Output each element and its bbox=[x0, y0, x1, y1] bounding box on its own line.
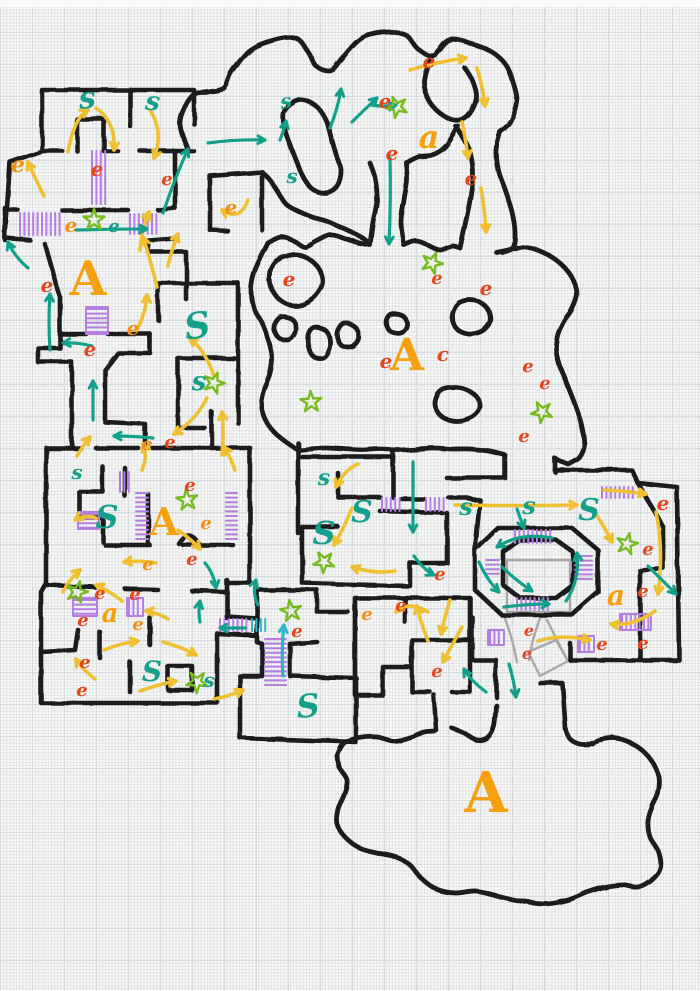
map-letter-e: e bbox=[132, 614, 143, 635]
map-letter-s: s bbox=[277, 88, 293, 114]
map-letter-S: S bbox=[312, 514, 335, 552]
teal-arrow bbox=[414, 556, 434, 575]
map-letter-S: S bbox=[295, 686, 321, 726]
wall bbox=[317, 590, 348, 612]
map-letter-e: e bbox=[186, 549, 197, 570]
yellow-arrow bbox=[163, 642, 196, 655]
map-letter-e: e bbox=[434, 564, 445, 585]
map-letter-s: s bbox=[521, 491, 536, 520]
yellow-arrow bbox=[27, 162, 44, 196]
door-hatch bbox=[120, 472, 129, 492]
map-letter-e: e bbox=[161, 169, 172, 190]
teal-arrow bbox=[195, 601, 203, 622]
map-letter-e: e bbox=[380, 349, 393, 373]
map-letter-e: e bbox=[164, 432, 175, 453]
wall bbox=[290, 642, 317, 644]
teal-arrow bbox=[7, 242, 28, 268]
map-letter-e: e bbox=[129, 584, 140, 605]
cave-wall bbox=[435, 388, 480, 421]
map-letter-a: a bbox=[102, 599, 119, 629]
yellow-arrow bbox=[104, 638, 138, 650]
door-hatch bbox=[486, 560, 499, 574]
map-letter-e: e bbox=[84, 337, 97, 361]
teal-arrow bbox=[330, 89, 344, 128]
door-hatch bbox=[426, 498, 444, 511]
wall bbox=[77, 119, 104, 151]
teal-arrow bbox=[464, 669, 486, 692]
star-icon bbox=[618, 533, 638, 554]
yellow-arrow bbox=[477, 68, 488, 106]
map-letter-e: e bbox=[637, 581, 648, 602]
cave-wall bbox=[452, 705, 496, 740]
map-letter-a: a bbox=[607, 579, 625, 612]
map-letter-e: e bbox=[386, 141, 399, 165]
graph-paper-page: sseeeeAeeeSseeeesseeaeeeeeAeceeesSSssSes… bbox=[0, 0, 700, 991]
map-letter-e: e bbox=[539, 373, 550, 394]
map-letter-e: e bbox=[522, 644, 532, 663]
teal-arrow bbox=[385, 158, 393, 244]
door-hatch bbox=[20, 213, 60, 235]
cave-wall bbox=[497, 247, 584, 464]
map-letter-e: e bbox=[108, 216, 119, 237]
wall bbox=[227, 616, 257, 618]
yellow-arrow bbox=[443, 627, 462, 662]
map-letter-e: e bbox=[480, 276, 493, 300]
dungeon-map: sseeeeAeeeSseeeesseeaeeeeeAeceeesSSssSes… bbox=[0, 0, 700, 991]
wall bbox=[105, 334, 150, 446]
map-letter-A: A bbox=[389, 330, 425, 381]
teal-arrow bbox=[46, 294, 54, 350]
map-letter-e: e bbox=[76, 680, 87, 701]
cave-wall bbox=[274, 317, 296, 341]
map-letter-e: e bbox=[142, 554, 153, 575]
wall bbox=[158, 208, 175, 210]
door-hatch bbox=[86, 307, 108, 334]
teal-arrow bbox=[479, 562, 499, 592]
map-letter-A: A bbox=[463, 760, 509, 826]
map-letter-e: e bbox=[395, 595, 406, 616]
yellow-arrow bbox=[481, 188, 490, 232]
map-letter-S: S bbox=[95, 498, 118, 536]
wall bbox=[434, 695, 436, 730]
wall bbox=[192, 591, 227, 592]
map-letter-e: e bbox=[596, 634, 607, 655]
door-hatch bbox=[488, 630, 504, 645]
door-hatch bbox=[226, 493, 237, 539]
map-letter-e: e bbox=[225, 195, 238, 219]
star-icon bbox=[300, 391, 321, 411]
map-letter-S: S bbox=[142, 655, 162, 688]
map-letter-e: e bbox=[379, 89, 392, 113]
cave-wall bbox=[404, 241, 460, 250]
map-letter-e: e bbox=[291, 621, 302, 642]
cave-wall bbox=[337, 323, 359, 348]
map-letter-a: a bbox=[419, 118, 440, 156]
yellow-arrow bbox=[96, 108, 118, 150]
yellow-arrow bbox=[352, 566, 395, 573]
yellow-arrow bbox=[224, 447, 235, 470]
map-letter-e: e bbox=[65, 213, 78, 237]
cyan-arrow bbox=[279, 625, 287, 676]
map-letter-e: e bbox=[642, 539, 653, 560]
star-icon bbox=[313, 553, 334, 573]
cave-wall bbox=[268, 235, 370, 247]
yellow-arrow bbox=[410, 55, 466, 70]
map-letter-e: e bbox=[361, 604, 372, 625]
map-letter-s: s bbox=[76, 80, 97, 116]
teal-arrow bbox=[509, 664, 519, 697]
map-letter-e: e bbox=[283, 267, 296, 291]
wall bbox=[290, 676, 356, 678]
wall bbox=[555, 470, 638, 483]
map-letter-A: A bbox=[148, 499, 179, 544]
map-letter-e: e bbox=[91, 157, 104, 181]
map-letter-e: e bbox=[657, 491, 670, 515]
map-letter-s: s bbox=[458, 492, 473, 521]
pencil-diamond bbox=[528, 640, 568, 676]
cave-wall bbox=[452, 300, 490, 335]
cave-wall bbox=[269, 255, 323, 306]
wall bbox=[38, 334, 72, 446]
map-letter-e: e bbox=[141, 434, 152, 455]
wall bbox=[41, 630, 78, 652]
map-letter-s: s bbox=[191, 367, 207, 397]
wall bbox=[540, 683, 565, 728]
cave-wall bbox=[298, 448, 505, 455]
map-letter-e: e bbox=[431, 268, 442, 289]
map-letter-e: e bbox=[41, 273, 54, 297]
map-letter-s: s bbox=[202, 668, 214, 692]
map-letter-e: e bbox=[431, 661, 442, 682]
map-letter-e: e bbox=[522, 356, 533, 377]
map-letter-s: s bbox=[70, 460, 82, 484]
cave-wall bbox=[370, 163, 377, 245]
pencil-line bbox=[505, 618, 517, 662]
map-letter-e: e bbox=[637, 633, 648, 654]
map-letter-e: e bbox=[11, 152, 25, 178]
teal-arrow bbox=[89, 381, 97, 420]
yellow-arrow bbox=[439, 600, 450, 634]
wall bbox=[503, 540, 573, 598]
map-letter-e: e bbox=[127, 316, 140, 340]
teal-arrow bbox=[352, 98, 377, 122]
map-letter-A: A bbox=[68, 251, 107, 307]
map-letter-e: e bbox=[77, 610, 88, 631]
star-icon bbox=[531, 402, 552, 423]
map-letter-S: S bbox=[182, 304, 214, 349]
cave-wall bbox=[401, 164, 407, 245]
cave-wall bbox=[180, 32, 517, 150]
map-letter-s: s bbox=[143, 86, 162, 117]
star-icon bbox=[205, 373, 225, 394]
map-letter-c: c bbox=[437, 342, 449, 366]
teal-arrow bbox=[205, 563, 219, 588]
map-letter-s: s bbox=[317, 465, 330, 491]
wall bbox=[5, 238, 30, 240]
wall bbox=[217, 634, 257, 636]
map-letter-e: e bbox=[200, 513, 211, 534]
map-letter-e: e bbox=[423, 49, 436, 73]
star-icon bbox=[280, 600, 301, 621]
map-letter-e: e bbox=[79, 652, 90, 673]
cave-wall bbox=[308, 327, 330, 358]
map-letter-e: e bbox=[524, 621, 534, 640]
cave-wall bbox=[496, 132, 515, 253]
map-letter-e: e bbox=[465, 166, 478, 190]
map-letter-e: e bbox=[518, 426, 529, 447]
map-letter-e: e bbox=[184, 475, 195, 496]
map-letter-S: S bbox=[578, 493, 600, 528]
map-letter-S: S bbox=[351, 495, 373, 530]
map-letter-s: s bbox=[285, 164, 297, 188]
teal-arrow bbox=[208, 136, 265, 144]
wall bbox=[210, 230, 228, 231]
cave-wall bbox=[262, 172, 370, 244]
